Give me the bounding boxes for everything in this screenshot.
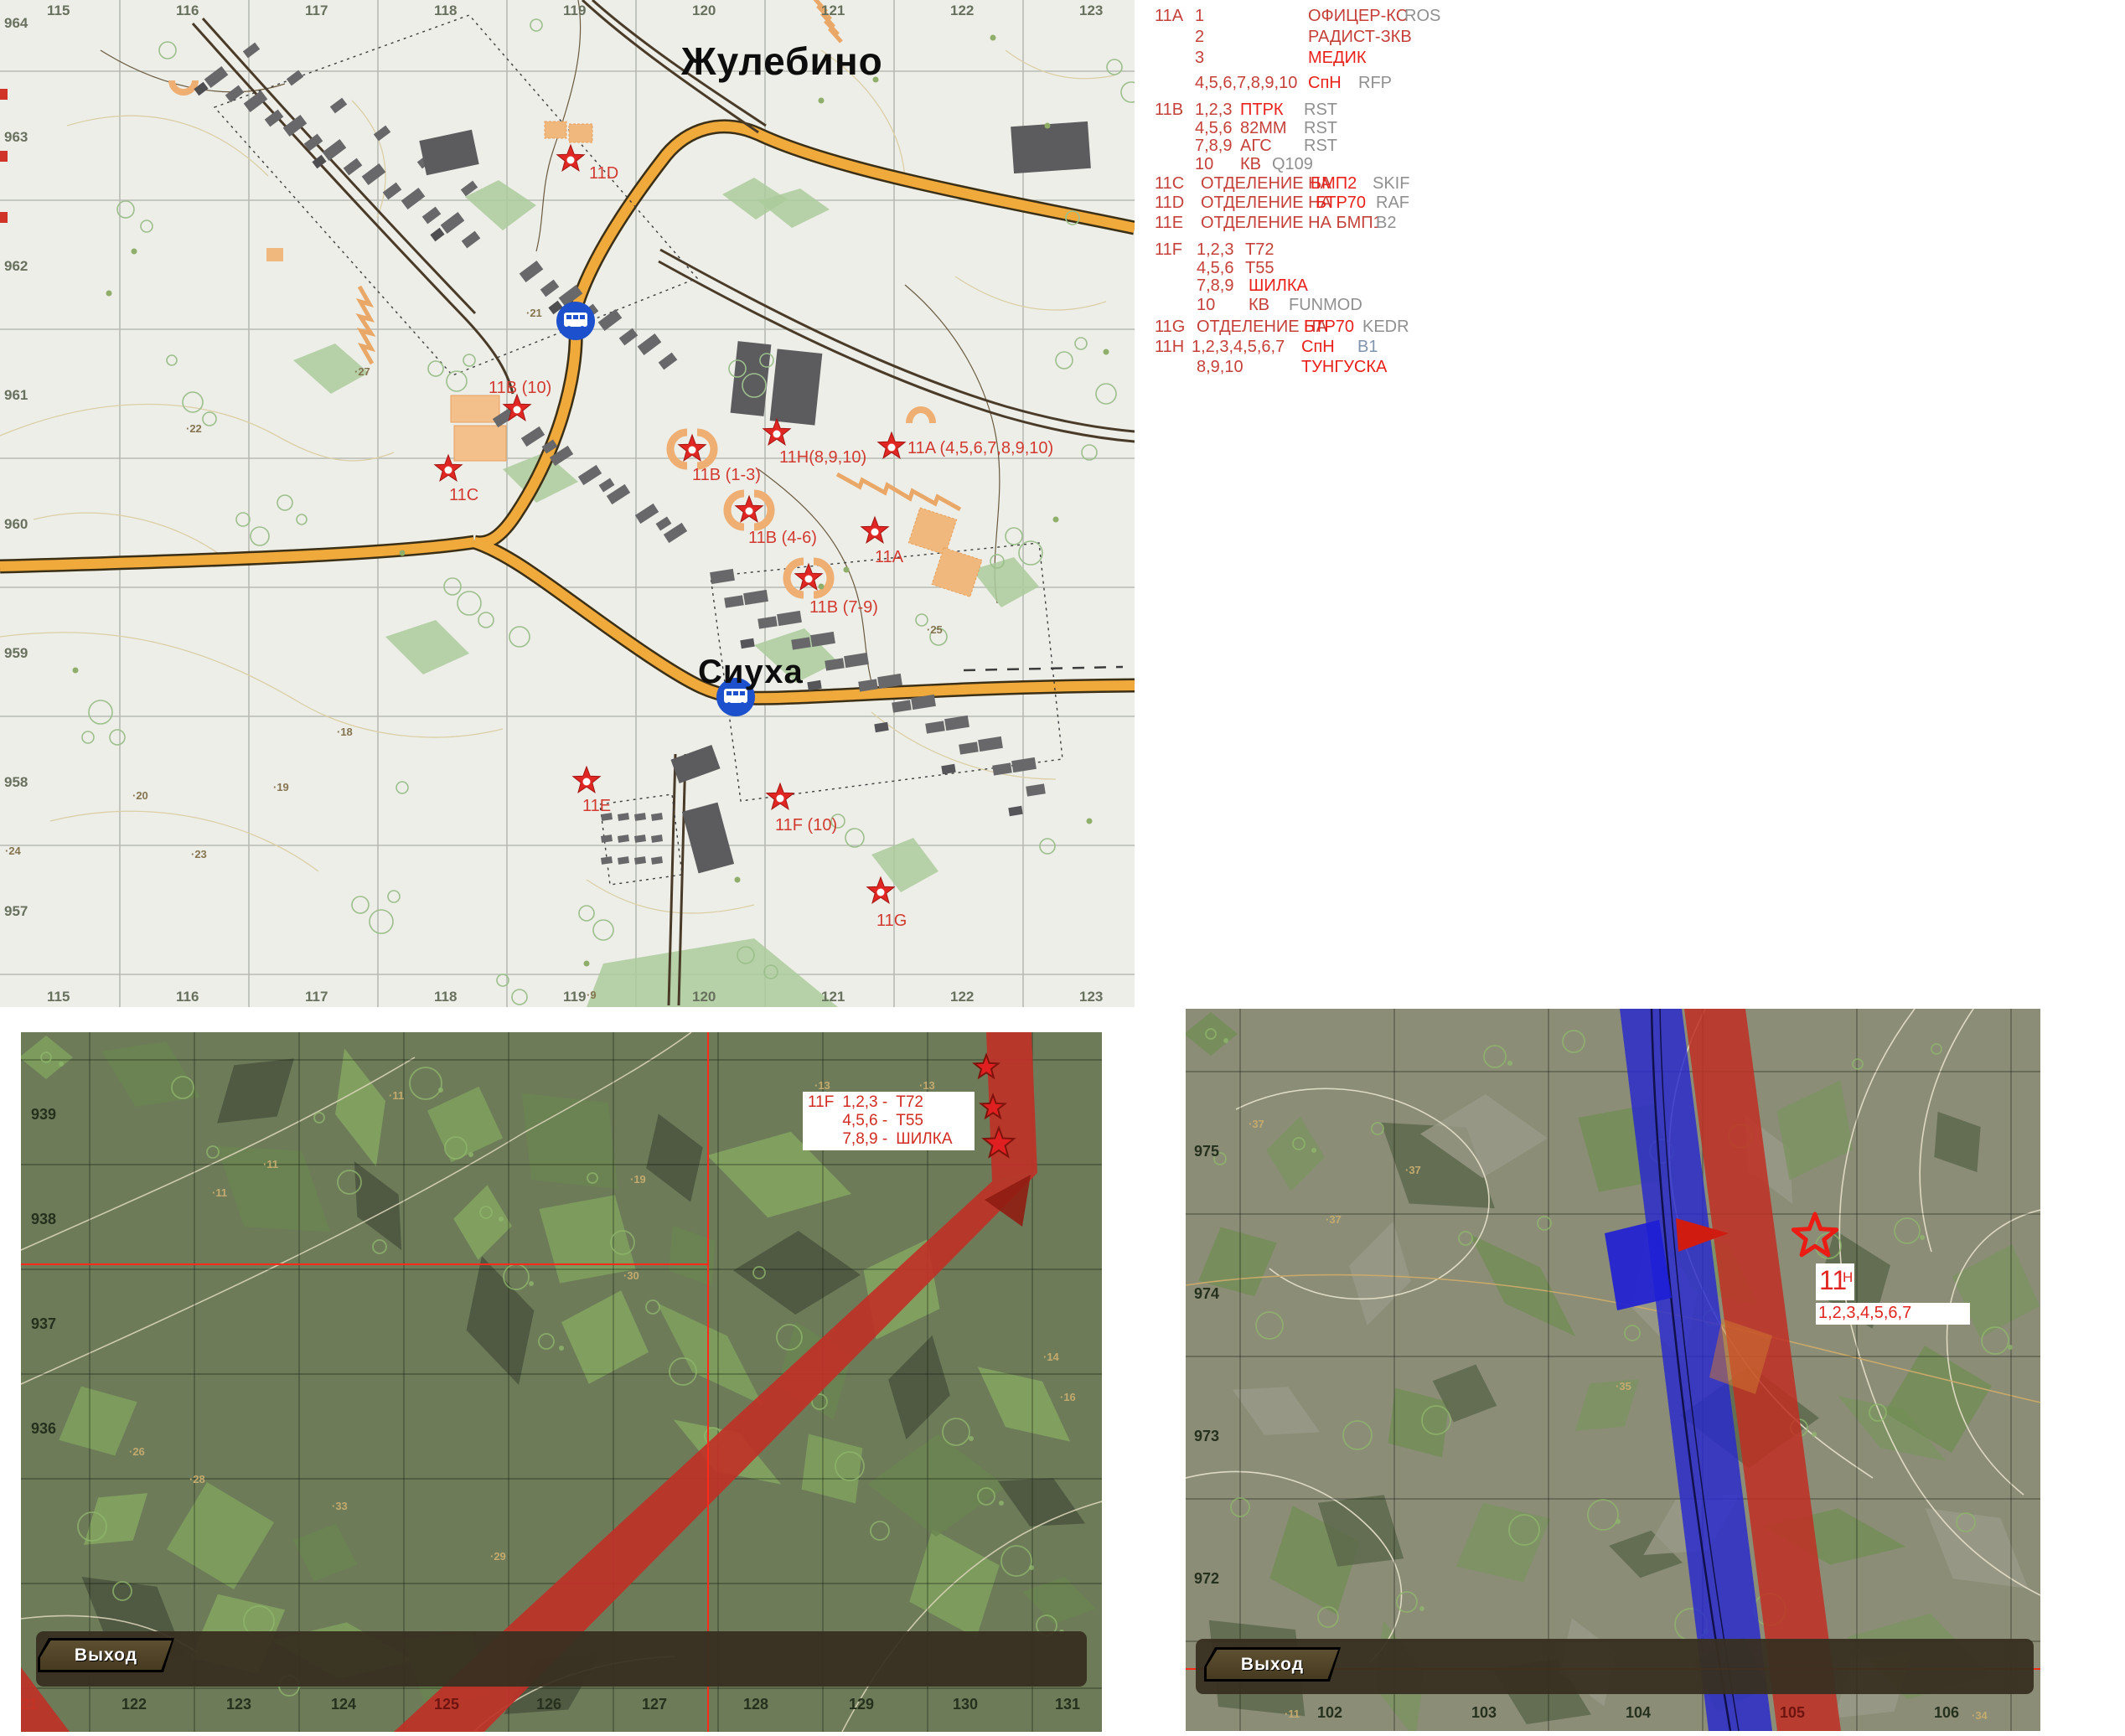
legend-cell: РАДИСТ-ЗКВ (1308, 28, 1412, 47)
legend-cell: RST (1304, 101, 1337, 120)
legend-cell: КВ (1249, 296, 1269, 315)
exit-button[interactable]: Выход (1204, 1647, 1341, 1682)
legend-cell: КВ (1240, 155, 1261, 174)
bus-stop-icon (556, 302, 595, 340)
legend-cell: БТР70 (1304, 318, 1354, 337)
legend-cell: RAF (1376, 194, 1409, 213)
east-terrain-art (1186, 1009, 2040, 1731)
legend-cell: 10 (1195, 155, 1213, 174)
legend-cell: Т72 (1245, 240, 1274, 260)
legend-cell: 4,5,6,7,8,9,10 (1195, 74, 1297, 93)
unit-numbers-box: 1,2,3,4,5,6,7 (1816, 1303, 1970, 1325)
unit-id-sub: Н (1843, 1269, 1853, 1286)
exit-button[interactable]: Выход (38, 1638, 174, 1672)
info-nums: 7,8,9 - (842, 1130, 896, 1149)
legend-cell: 1,2,3 (1195, 101, 1232, 120)
legend-cell: 11D (1155, 194, 1184, 213)
tactical-map-east-panel[interactable]: Выход 11 Н 1,2,3,4,5,6,7 102103104105106… (1186, 1009, 2040, 1731)
legend-cell: 11F (1155, 240, 1182, 260)
topo-terrain-art (0, 0, 1135, 1007)
info-type: Т55 (896, 1112, 960, 1130)
legend-cell: RST (1304, 137, 1337, 156)
legend-cell: ТУНГУСКА (1301, 358, 1387, 377)
legend-cell: 11B (1155, 101, 1183, 120)
exit-button-label: Выход (75, 1646, 137, 1666)
legend-cell: 4,5,6 (1195, 119, 1232, 138)
legend-cell: СпН (1308, 74, 1342, 93)
topo-map-panel[interactable]: 1151151161161171171181181191191201201211… (0, 0, 1135, 1007)
legend-cell: FUNMOD (1289, 296, 1362, 315)
legend-cell: Т55 (1245, 259, 1274, 278)
legend-cell: ПТРК (1240, 101, 1284, 120)
legend-cell: ОТДЕЛЕНИЕ НА БМП1 (1201, 214, 1383, 233)
unit-id-box: 11 Н (1816, 1263, 1854, 1300)
unit-numbers: 1,2,3,4,5,6,7 (1818, 1304, 1911, 1323)
tactical-map-west-panel[interactable]: Выход 11F 1,2,3 - Т72 4,5,6 - Т55 7,8,9 … (21, 1032, 1102, 1732)
legend-cell: B1 (1357, 338, 1378, 357)
info-nums: 4,5,6 - (842, 1112, 896, 1130)
legend-cell: 1,2,3,4,5,6,7 (1192, 338, 1285, 357)
legend-cell: МЕДИК (1308, 49, 1367, 68)
legend-cell: RST (1304, 119, 1337, 138)
legend-cell: ОТДЕЛЕНИЕ НА (1201, 194, 1331, 213)
info-type: ШИЛКА (896, 1130, 960, 1149)
legend-cell: 11H (1155, 338, 1184, 357)
screenshot-canvas: 1151151161161171171181181191191201201211… (0, 0, 2125, 1736)
legend-cell: 11E (1155, 214, 1183, 233)
legend-cell: KEDR (1362, 318, 1409, 337)
legend-cell: 82ММ (1240, 119, 1287, 138)
legend-cell: 11G (1155, 318, 1185, 337)
legend-cell: 3 (1195, 49, 1204, 68)
unit-info-box-11f: 11F 1,2,3 - Т72 4,5,6 - Т55 7,8,9 - ШИЛК… (803, 1092, 975, 1150)
legend-cell: 11C (1155, 174, 1184, 194)
info-type: Т72 (896, 1093, 960, 1112)
unit-legend: 11A1ОФИЦЕР-КСROS2РАДИСТ-ЗКВ3МЕДИК4,5,6,7… (1155, 0, 1540, 394)
legend-cell: 2 (1195, 28, 1204, 47)
legend-cell: 7,8,9 (1195, 137, 1232, 156)
legend-cell: СпН (1301, 338, 1335, 357)
legend-cell: ШИЛКА (1249, 276, 1308, 296)
legend-cell: 7,8,9 (1197, 276, 1233, 296)
legend-cell: 1,2,3 (1197, 240, 1233, 260)
legend-cell: 8,9,10 (1197, 358, 1243, 377)
exit-button-label: Выход (1241, 1655, 1304, 1675)
legend-cell: 10 (1197, 296, 1215, 315)
legend-cell: БМП2 (1311, 174, 1357, 194)
legend-cell: БТР70 (1316, 194, 1366, 213)
legend-cell: B2 (1376, 214, 1396, 233)
legend-cell: ROS (1404, 7, 1440, 26)
legend-cell: Q109 (1272, 155, 1313, 174)
legend-cell: 1 (1195, 7, 1204, 26)
map-bottom-bar (36, 1631, 1087, 1687)
bus-stop-icon (716, 678, 755, 716)
legend-cell: 11A (1155, 7, 1183, 26)
info-unit-id: 11F (808, 1093, 842, 1112)
legend-cell: 4,5,6 (1197, 259, 1233, 278)
legend-cell: RFP (1358, 74, 1392, 93)
legend-cell: ОФИЦЕР-КС (1308, 7, 1408, 26)
info-nums: 1,2,3 - (842, 1093, 896, 1112)
legend-cell: АГС (1240, 137, 1272, 156)
legend-cell: SKIF (1373, 174, 1409, 194)
